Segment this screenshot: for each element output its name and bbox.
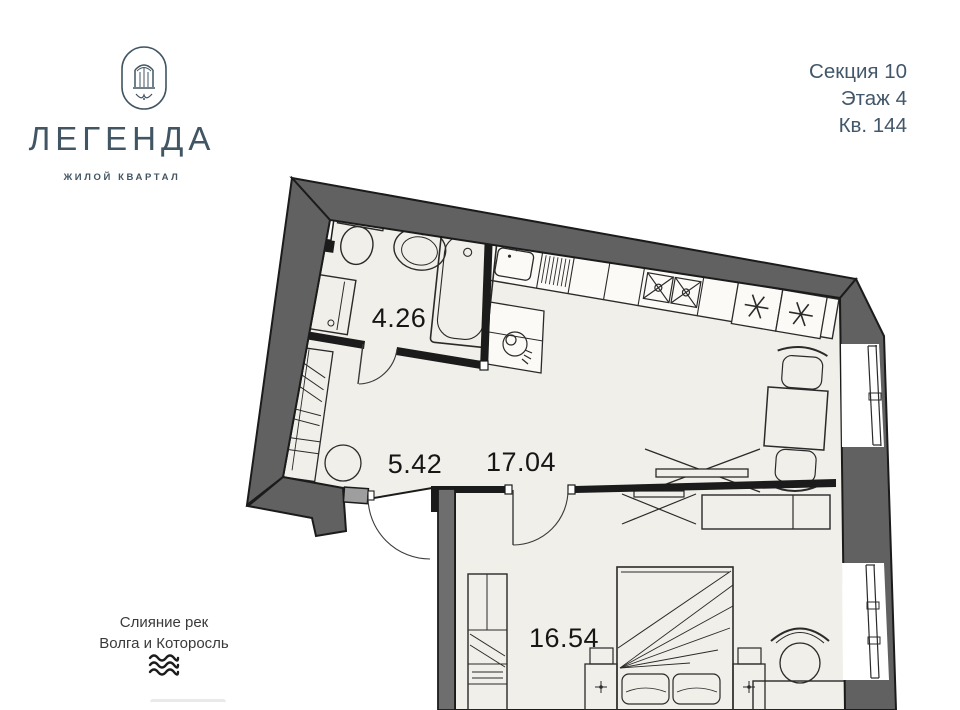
door-jamb bbox=[568, 485, 575, 494]
entrance-door-jamb bbox=[343, 487, 368, 504]
door-jamb bbox=[505, 485, 512, 494]
window-living bbox=[841, 344, 884, 447]
river-waves-icon bbox=[148, 653, 180, 679]
room-label-bedroom: 16.54 bbox=[529, 623, 599, 653]
room-label-kitchen-living: 17.04 bbox=[486, 447, 556, 477]
window-bedroom bbox=[842, 563, 889, 680]
location-note-line1: Слияние рек bbox=[74, 612, 254, 633]
bedroom-corridor-wall bbox=[438, 489, 455, 710]
wall-jamb bbox=[480, 361, 488, 370]
location-note: Слияние рек Волга и Которосль bbox=[74, 612, 254, 654]
floorplan-page: ЛЕГЕНДА ЖИЛОЙ КВАРТАЛ Секция 10 Этаж 4 К… bbox=[0, 0, 960, 710]
cropped-drawing-fragment bbox=[150, 699, 226, 710]
room-label-bathroom: 4.26 bbox=[372, 303, 427, 333]
door-entrance bbox=[368, 497, 430, 559]
fridge-icon bbox=[731, 282, 782, 331]
floorplan-drawing: 4.26 5.42 17.04 16.54 bbox=[0, 0, 960, 710]
kitchen-lower-cabinet bbox=[487, 302, 544, 373]
freezer-icon bbox=[776, 290, 827, 339]
location-note-line2: Волга и Которосль bbox=[74, 633, 254, 654]
room-label-hallway: 5.42 bbox=[388, 449, 443, 479]
entrance-door-frame-mark bbox=[368, 491, 374, 500]
